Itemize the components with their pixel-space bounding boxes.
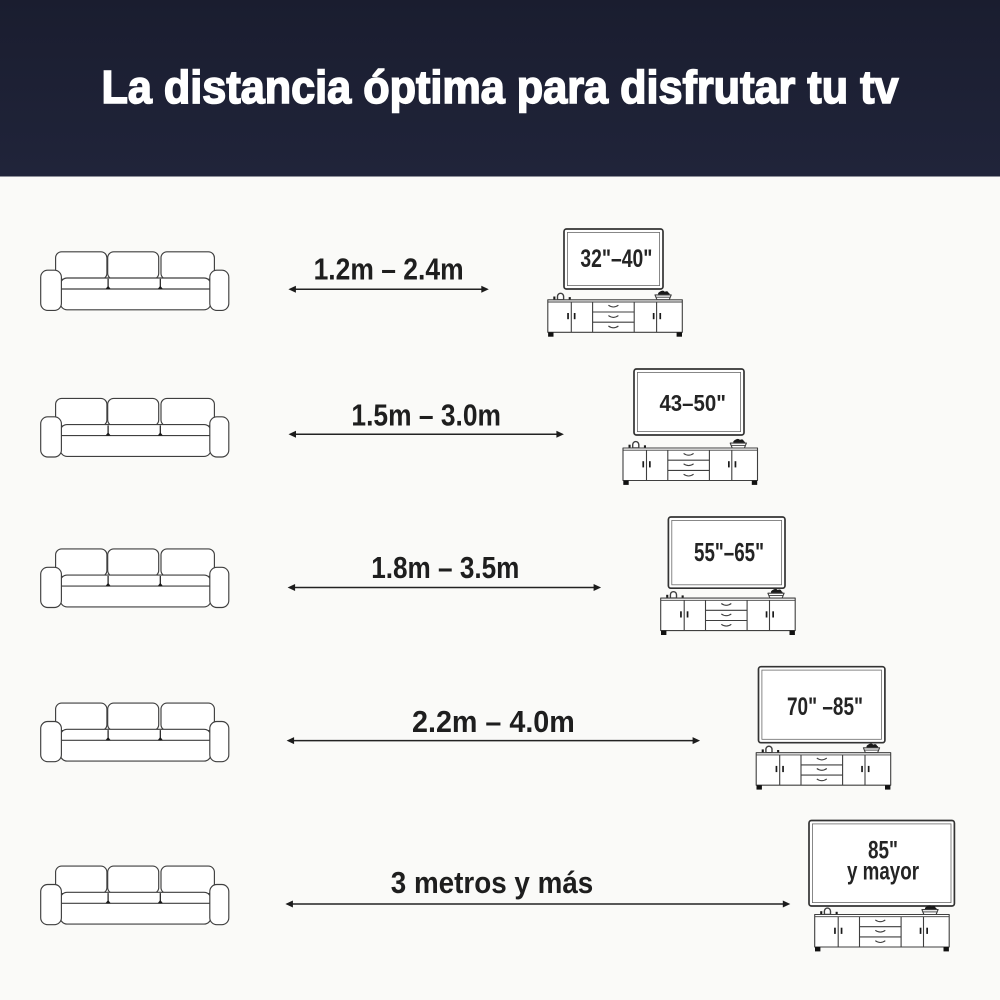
svg-text:32"–40": 32"–40" bbox=[580, 246, 652, 273]
svg-text:2.2m – 4.0m: 2.2m – 4.0m bbox=[412, 705, 575, 739]
svg-text:70" –85": 70" –85" bbox=[787, 694, 863, 721]
svg-text:43–50": 43–50" bbox=[659, 390, 726, 416]
svg-text:1.2m – 2.4m: 1.2m – 2.4m bbox=[314, 253, 464, 287]
svg-text:La distancia óptima para disfr: La distancia óptima para disfrutar tu tv bbox=[102, 61, 899, 113]
svg-text:3 metros y más: 3 metros y más bbox=[391, 866, 594, 900]
svg-text:1.5m – 3.0m: 1.5m – 3.0m bbox=[351, 399, 501, 433]
svg-text:55"–65": 55"–65" bbox=[694, 539, 764, 567]
svg-text:1.8m – 3.5m: 1.8m – 3.5m bbox=[371, 551, 519, 585]
svg-text:y mayor: y mayor bbox=[847, 859, 919, 886]
